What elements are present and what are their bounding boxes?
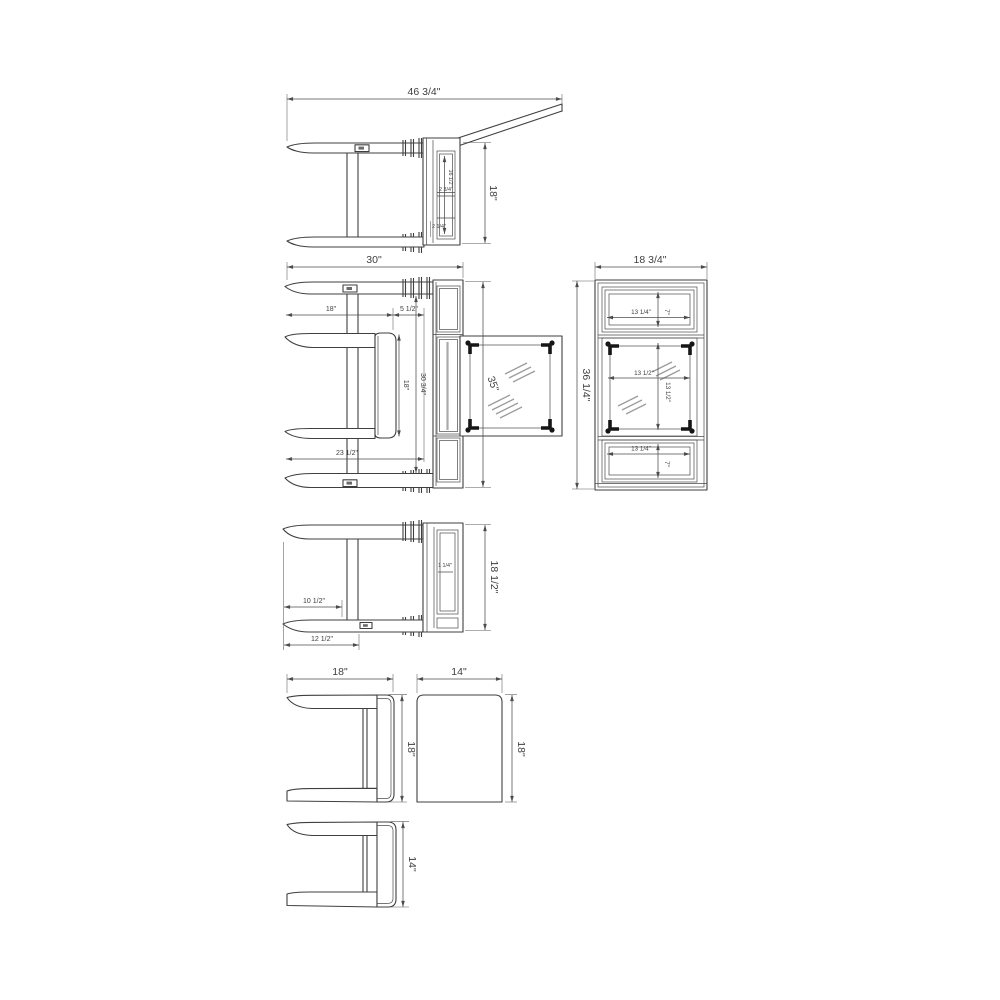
view-cabinet-front: 18 3/4" 36 1/4" 13 1/4" 7"	[572, 254, 707, 490]
dim-label-height: 14"	[406, 856, 418, 872]
dim-label-height: 18"	[487, 185, 499, 201]
stool-post	[363, 835, 367, 892]
dim-label-height: 18"	[405, 741, 417, 757]
table-leaf-extended	[458, 104, 562, 146]
view-stool-side: 18" 18"	[287, 666, 417, 802]
dim-label-drawer-height: 7"	[663, 461, 670, 467]
lower-rail	[283, 620, 423, 632]
hinge-pin	[347, 482, 353, 485]
dim-label-drawer-width: 13 1/4"	[631, 309, 651, 316]
turned-post-rings	[403, 138, 422, 253]
hinge-pin	[359, 147, 365, 150]
stool-bottom-leg	[287, 892, 377, 907]
leaf-glass-panel	[460, 336, 562, 436]
stool-tucked	[285, 333, 396, 439]
stool-bottom-leg	[287, 788, 377, 802]
dim-label-drawer-width: 13 1/4"	[631, 446, 651, 453]
view-side-leaf-stored: 1 1/4" 18 1/2" 10 1/2" 12 1/2"	[283, 520, 500, 650]
lower-rail	[285, 474, 433, 488]
stool-top-leg	[287, 822, 377, 836]
dimension-drawing-svg: 46 3/4" 16 1/2" 2 3/4" 2 1/4"	[0, 0, 1000, 1000]
dim-label-top-width: 30"	[366, 254, 382, 266]
dim-label-top-width: 18"	[332, 666, 348, 678]
stool-seat-side	[377, 695, 394, 802]
view-side-with-stool: 30" 18" 5 1/2" 18" 30 3/4" 2	[285, 254, 562, 493]
view-side-leaf-extended: 46 3/4" 16 1/2" 2 3/4" 2 1/4"	[287, 86, 562, 253]
dim-label-rail-width: 12 1/2"	[311, 636, 333, 643]
drawing-canvas: 46 3/4" 16 1/2" 2 3/4" 2 1/4"	[0, 0, 1000, 1000]
dim-label-top-width: 46 3/4"	[408, 86, 441, 98]
center-post	[347, 153, 358, 237]
dim-label-top-width: 18 3/4"	[634, 254, 667, 266]
center-post	[347, 294, 358, 474]
cabinet-column	[423, 523, 463, 632]
dim-label-drawer-height: 7"	[663, 309, 670, 315]
dim-label-height: 18 1/2"	[488, 561, 500, 594]
dim-label-panel-height: 16 1/2"	[447, 170, 453, 187]
dim-label-glass-width: 13 1/2"	[634, 370, 654, 377]
dim-label-top-width: 14"	[451, 666, 467, 678]
lower-rail	[287, 237, 424, 247]
tabletop	[283, 525, 423, 539]
dim-label-lower-width: 23 1/2"	[336, 450, 358, 457]
center-post	[347, 539, 358, 620]
view-stool-front: 14" 18"	[417, 666, 527, 802]
stool-front-body	[417, 695, 502, 802]
stool-post	[363, 708, 367, 788]
dim-label-height: 18"	[515, 741, 527, 757]
hinge-pin	[347, 287, 353, 290]
hinge-pin	[363, 624, 368, 627]
dim-label-glass-height: 13 1/2"	[664, 382, 671, 402]
dim-label-panel-bottom: 2 1/4"	[432, 224, 446, 230]
dim-label-height: 36 1/4"	[580, 369, 592, 402]
stool-bottom-leg	[285, 429, 375, 439]
dim-label-panel-width: 1 1/4"	[438, 563, 452, 569]
stool-top-leg	[285, 334, 375, 348]
dim-label-stool-height: 18"	[402, 380, 409, 391]
dim-label-table-height: 30 3/4"	[419, 373, 426, 395]
dim-label-panel-depth: 2 3/4"	[439, 187, 453, 193]
dim-label-inner-width: 10 1/2"	[303, 598, 325, 605]
stool-top-leg	[287, 695, 377, 709]
cabinet-column	[433, 280, 463, 488]
view-stool-side-short: 14"	[287, 822, 418, 907]
dim-label-depth: 18"	[326, 306, 337, 313]
